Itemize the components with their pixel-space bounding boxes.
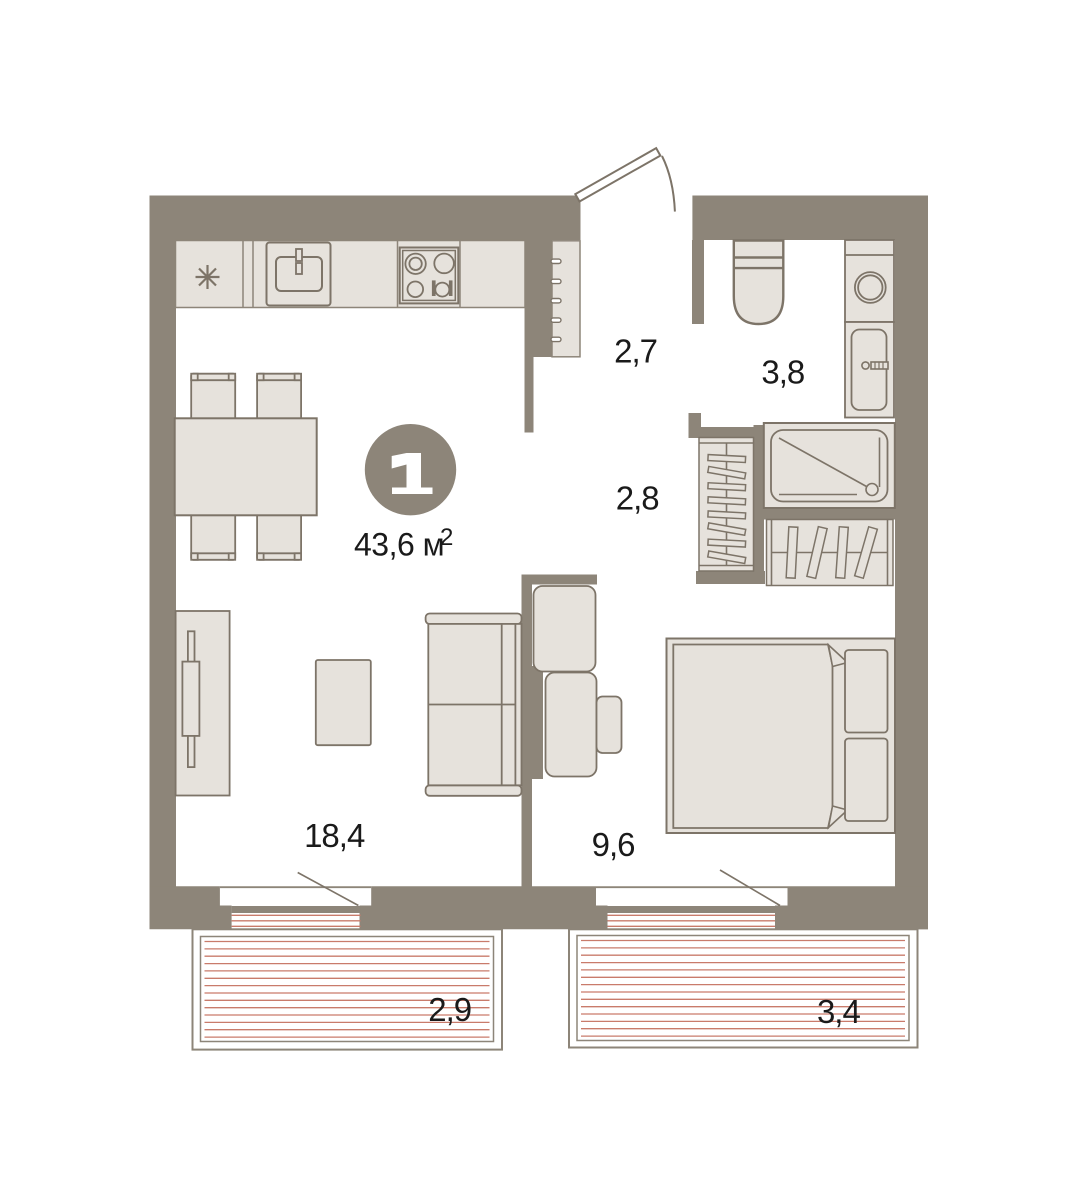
svg-text:43,6 м: 43,6 м [354,527,444,563]
svg-text:3,8: 3,8 [761,353,804,390]
svg-text:2,9: 2,9 [428,991,471,1028]
svg-text:2,7: 2,7 [614,333,657,370]
svg-text:3,4: 3,4 [817,993,861,1030]
svg-text:2: 2 [440,524,453,551]
svg-text:9,6: 9,6 [592,826,635,863]
svg-text:2,8: 2,8 [616,480,659,517]
svg-text:18,4: 18,4 [304,817,365,854]
